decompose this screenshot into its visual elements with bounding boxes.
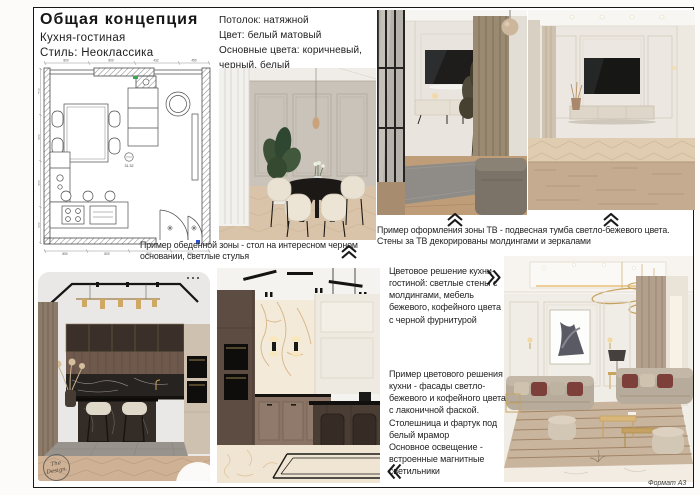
photo-dining-area xyxy=(219,68,376,240)
chevron-up-icon xyxy=(602,213,620,228)
glass-partition xyxy=(377,10,405,182)
svg-text:31.32: 31.32 xyxy=(125,164,134,168)
tall-cabinets xyxy=(217,290,255,460)
plan-area-label: 31.32 xyxy=(125,153,134,168)
plan-green-marker xyxy=(133,76,138,79)
svg-text:800: 800 xyxy=(108,59,114,63)
kitchen-colors-text: Пример цветового решения кухни - фасады … xyxy=(389,368,510,441)
photo-kitchen-marble xyxy=(217,268,380,483)
spec-ceiling: Потолок: натяжной xyxy=(219,13,377,28)
photo-kitchen-dark: The Design. xyxy=(38,272,210,481)
svg-text:800: 800 xyxy=(63,59,69,63)
plan-kitchen-cabinets xyxy=(128,88,158,146)
table-lamp xyxy=(432,93,438,99)
page-subtitle: Кухня-гостиная xyxy=(40,32,198,44)
caption-tv-zone: Пример оформления зоны ТВ - подвесная ту… xyxy=(377,225,695,248)
title-block: Общая концепция Кухня-гостиная Стиль: Не… xyxy=(40,11,198,59)
svg-text:800: 800 xyxy=(38,180,41,186)
floor-plan: 31.32 800 800 432 450 850 800 800 800 4 xyxy=(38,56,218,256)
svg-text:600: 600 xyxy=(38,222,41,228)
sofa-left xyxy=(506,376,594,410)
svg-text:450: 450 xyxy=(38,88,41,94)
tv-screen xyxy=(584,58,640,94)
chevron-up-icon xyxy=(340,245,358,260)
sofa-corner xyxy=(475,158,527,215)
caption-kitchen-colors: Пример цветового решения кухни - фасады … xyxy=(389,368,510,477)
photo-tv-zone-2 xyxy=(528,10,695,210)
curtain-brown xyxy=(473,16,509,158)
caption-dining: Пример обеденной зоны - стол на интересн… xyxy=(140,240,364,263)
spec-ceiling-color: Цвет: белый матовый xyxy=(219,28,377,43)
specs-block: Потолок: натяжной Цвет: белый матовый Ос… xyxy=(219,13,377,73)
plan-armchair xyxy=(166,92,190,116)
concept-board-page: Общая концепция Кухня-гостиная Стиль: Не… xyxy=(0,0,700,495)
svg-text:432: 432 xyxy=(153,59,159,63)
oven-column xyxy=(184,324,210,454)
svg-text:450: 450 xyxy=(191,59,197,63)
abstract-artwork xyxy=(550,310,590,364)
plan-tv-unit xyxy=(192,114,198,180)
svg-text:850: 850 xyxy=(62,252,68,256)
white-panel-wall xyxy=(315,294,380,394)
dark-marble-backsplash xyxy=(66,374,184,398)
svg-text:800: 800 xyxy=(104,252,110,256)
floor-plan-drawing: 31.32 800 800 432 450 850 800 800 800 4 xyxy=(38,56,218,256)
sofa-right xyxy=(616,368,693,404)
chevron-left-icon xyxy=(388,463,403,481)
chevron-right-icon xyxy=(486,269,501,287)
plan-doors xyxy=(160,210,202,240)
plan-sink xyxy=(143,79,149,85)
page-title: Общая концепция xyxy=(40,11,198,29)
floating-console xyxy=(568,106,656,125)
marble-floor xyxy=(217,445,380,483)
sheet-format-label: Формат А3 xyxy=(648,480,686,487)
plan-island xyxy=(50,191,128,228)
lighting-text: Основное освещение - встроенные магнитны… xyxy=(389,441,510,477)
svg-text:800: 800 xyxy=(38,134,41,140)
photo-living-room xyxy=(504,256,693,482)
chevron-up-icon xyxy=(446,213,464,228)
rug xyxy=(528,162,695,210)
photo-tv-zone-1 xyxy=(377,10,527,215)
marble-backsplash-wall xyxy=(255,300,315,394)
